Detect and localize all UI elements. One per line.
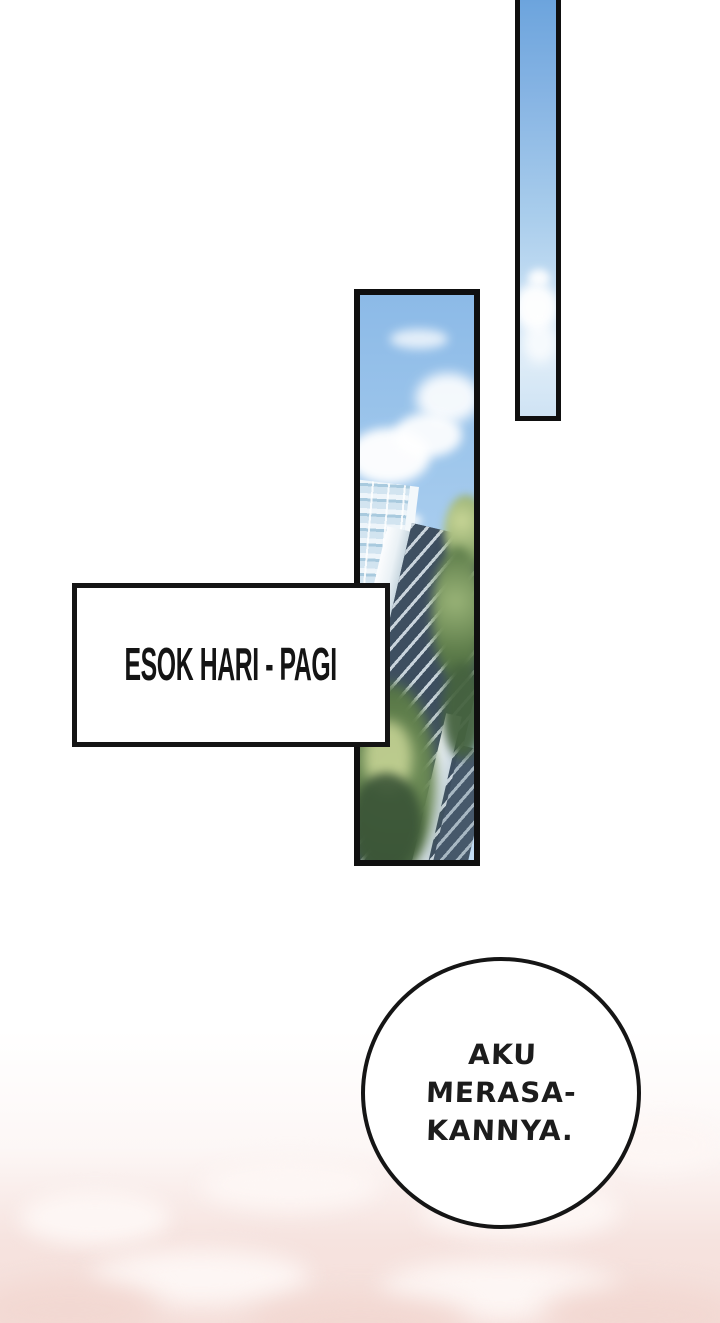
skyscraper-art: [360, 295, 474, 860]
cloud: [390, 329, 448, 349]
cloud: [522, 321, 558, 363]
cloud: [528, 269, 550, 287]
speech-line: KANNYA.: [424, 1112, 576, 1150]
caption-text: ESOK HARI - PAGI: [125, 638, 337, 692]
comic-page: ESOK HARI - PAGI AKU MERASA- KANNYA.: [0, 0, 720, 1323]
caption-box: ESOK HARI - PAGI: [72, 583, 390, 747]
speech-line: MERASA-: [425, 1074, 577, 1112]
pink-blob: [20, 1190, 170, 1245]
skyscraper-panel: [354, 289, 480, 866]
tree-foliage: [442, 663, 480, 758]
sky-strip-panel: [515, 0, 561, 421]
pink-blob: [200, 1160, 380, 1210]
speech-bubble: AKU MERASA- KANNYA.: [361, 957, 641, 1229]
speech-line: AKU: [426, 1036, 578, 1074]
speech-bubble-text: AKU MERASA- KANNYA.: [424, 1036, 579, 1150]
cloud: [394, 413, 462, 457]
tree-foliage: [432, 547, 480, 682]
